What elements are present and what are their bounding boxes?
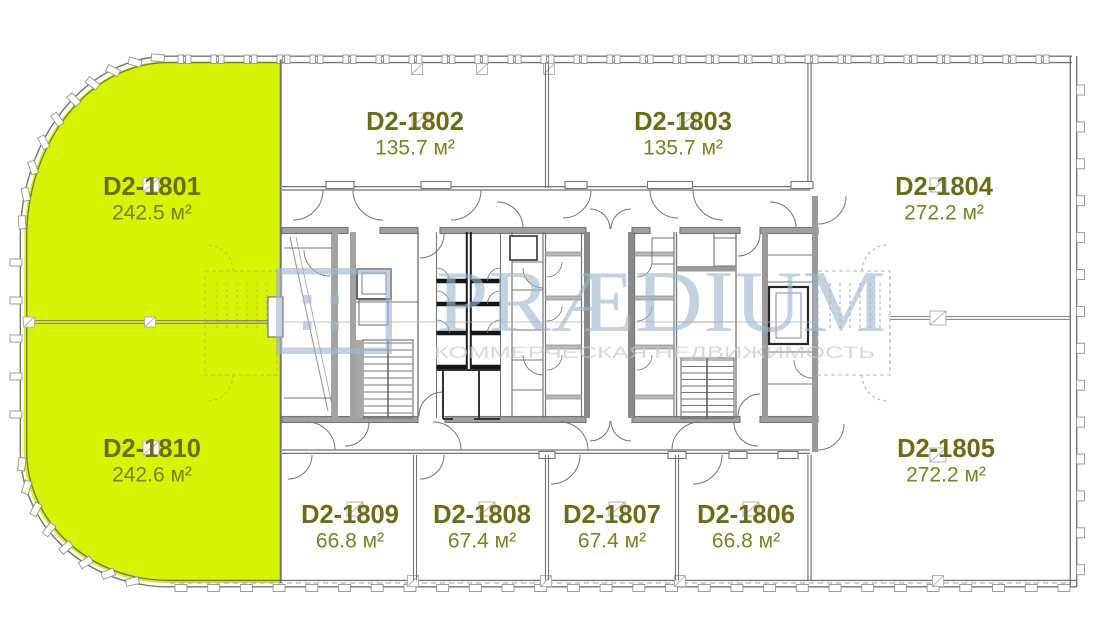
svg-text:67.4 м²: 67.4 м² <box>578 530 646 553</box>
svg-text:272.2 м²: 272.2 м² <box>904 202 984 225</box>
svg-text:D2-1802: D2-1802 <box>366 108 464 136</box>
svg-text:272.2 м²: 272.2 м² <box>906 464 986 487</box>
svg-text:66.8 м²: 66.8 м² <box>316 530 384 553</box>
svg-text:D2-1810: D2-1810 <box>103 435 201 463</box>
svg-text:67.4 м²: 67.4 м² <box>448 530 516 553</box>
svg-text:КОММЕРЧЕСКАЯ НЕДВИЖИМОСТЬ: КОММЕРЧЕСКАЯ НЕДВИЖИМОСТЬ <box>434 344 875 362</box>
svg-text:D2-1805: D2-1805 <box>897 435 995 463</box>
svg-text:242.6 м²: 242.6 м² <box>112 464 192 487</box>
svg-text:135.7 м²: 135.7 м² <box>643 137 723 160</box>
svg-text:66.8 м²: 66.8 м² <box>712 530 780 553</box>
svg-text:D2-1808: D2-1808 <box>433 501 531 529</box>
svg-text:D2-1806: D2-1806 <box>697 501 795 529</box>
svg-text:135.7 м²: 135.7 м² <box>375 137 455 160</box>
svg-text:D2-1809: D2-1809 <box>301 501 399 529</box>
svg-text:242.5 м²: 242.5 м² <box>112 202 192 225</box>
svg-text:D2-1807: D2-1807 <box>563 501 661 529</box>
svg-text:PRÆDIUM: PRÆDIUM <box>436 254 886 351</box>
svg-text:D2-1804: D2-1804 <box>895 173 994 201</box>
svg-text:D2-1801: D2-1801 <box>103 173 201 201</box>
svg-text:D2-1803: D2-1803 <box>634 108 732 136</box>
